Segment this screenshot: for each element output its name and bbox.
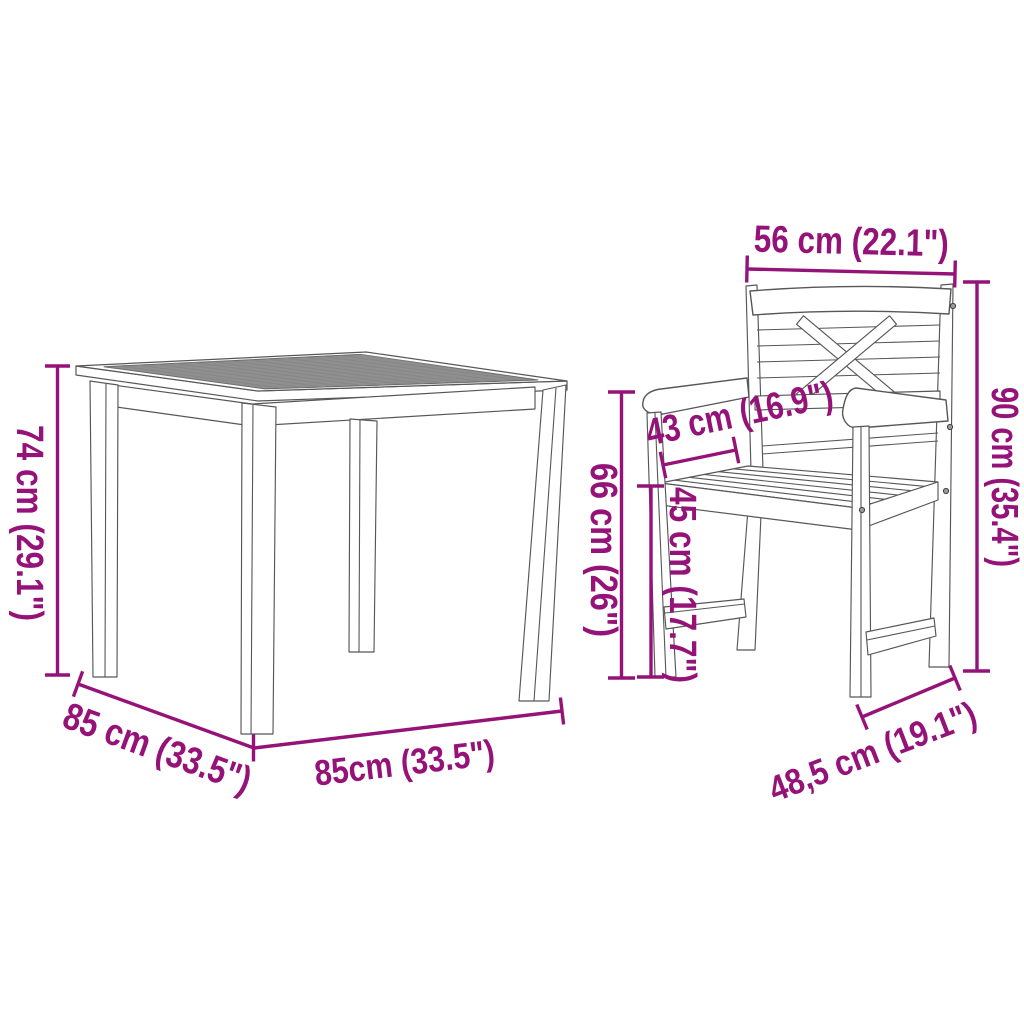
svg-text:56 cm (22.1"): 56 cm (22.1") <box>753 219 949 266</box>
svg-text:45 cm (17.7"): 45 cm (17.7") <box>661 487 703 683</box>
svg-text:90 cm (35.4"): 90 cm (35.4") <box>983 387 1024 567</box>
svg-text:74 cm (29.1"): 74 cm (29.1") <box>8 425 50 621</box>
svg-text:66 cm (26"): 66 cm (26") <box>582 463 624 637</box>
